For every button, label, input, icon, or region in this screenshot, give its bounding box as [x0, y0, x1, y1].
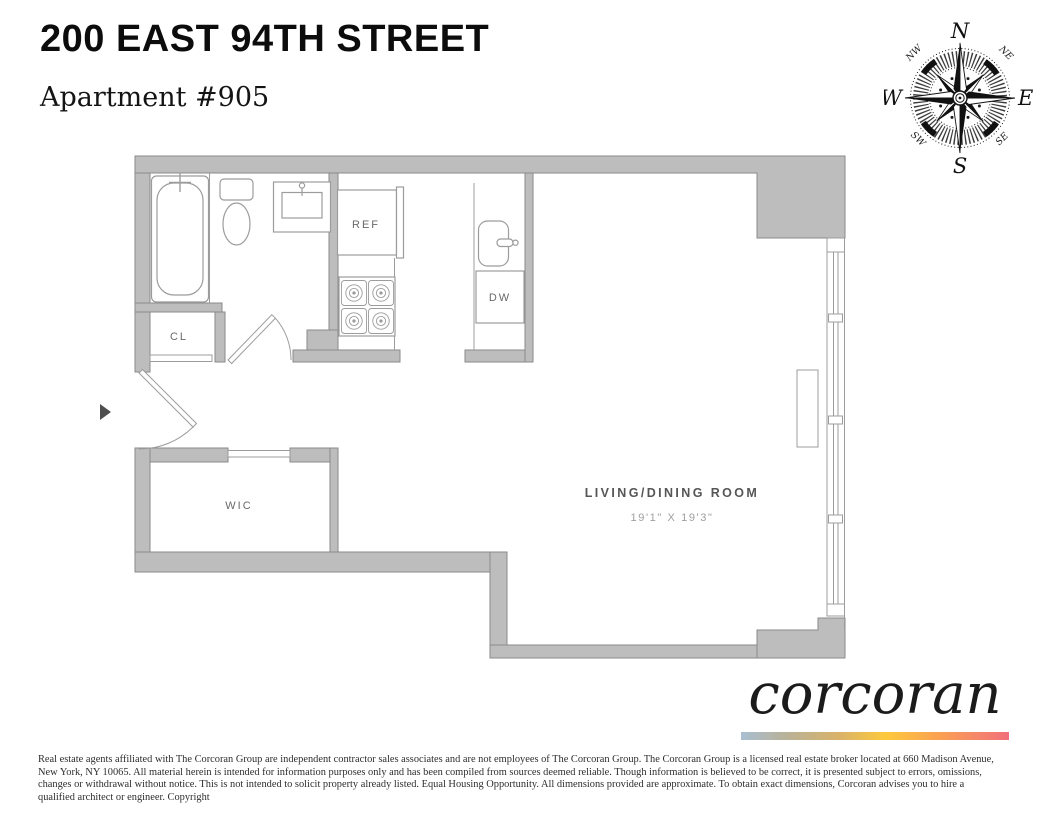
- bathroom-door-swing: [275, 318, 291, 360]
- wic-sliding-door: [228, 451, 290, 458]
- wall-south-living: [490, 645, 762, 658]
- wall-left: [135, 173, 150, 372]
- doors: [100, 315, 291, 457]
- label-living-room: LIVING/DINING ROOM: [585, 486, 759, 500]
- wall-cl-top: [135, 303, 222, 312]
- window-cap-top: [827, 238, 845, 252]
- window-mullion: [829, 416, 843, 424]
- bathroom-door-leaf: [228, 315, 275, 364]
- disclaimer-line: changes or withdrawal without notice. Th…: [38, 779, 1038, 792]
- wall-kitchen-south-right: [465, 350, 533, 362]
- disclaimer-line: New York, NY 10065. All material herein …: [38, 767, 1038, 780]
- kitchen-fixtures: [338, 183, 525, 350]
- toilet-bowl: [223, 203, 250, 245]
- wall-kitchen-living-divider: [525, 173, 533, 362]
- corcoran-logo: corcoran: [741, 660, 1009, 730]
- wall-step-vertical: [490, 552, 507, 658]
- disclaimer-line: Real estate agents affiliated with The C…: [38, 754, 1038, 767]
- room-labels: REF DW CL WIC LIVING/DINING ROOM 19'1" X…: [170, 219, 759, 524]
- kitchen-faucet-icon: [497, 239, 513, 247]
- window-mullion: [829, 515, 843, 523]
- column-enclosure: [797, 370, 818, 447]
- floorplan-page: 200 EAST 94TH STREET Apartment #905: [0, 0, 1056, 816]
- window-cap-bottom: [827, 604, 845, 616]
- label-walk-in-closet: WIC: [225, 500, 252, 512]
- vanity-sink: [282, 193, 322, 219]
- entry-arrow-icon: [100, 404, 111, 420]
- disclaimer-line: qualified architect or engineer. Copyrig…: [38, 792, 1038, 805]
- label-living-room-dimensions: 19'1" X 19'3": [631, 512, 714, 524]
- wall-south-long: [135, 552, 507, 572]
- wall-wic-right: [330, 448, 338, 558]
- brand-gradient-bar: [741, 732, 1009, 740]
- refrigerator-door: [397, 187, 404, 258]
- wall-se-block: [757, 618, 845, 658]
- bathroom-fixtures: [152, 173, 331, 303]
- label-closet: CL: [170, 331, 188, 343]
- label-dishwasher: DW: [489, 292, 511, 304]
- bathtub-basin: [157, 183, 203, 295]
- toilet-tank: [220, 179, 253, 200]
- label-refrigerator: REF: [352, 219, 380, 231]
- wall-cl-right: [215, 312, 225, 362]
- entry-door-swing: [139, 427, 193, 449]
- vanity-faucet-icon: [299, 183, 304, 188]
- wall-kitchen-south-left: [293, 350, 400, 362]
- entry-door-leaf: [139, 370, 197, 428]
- legal-disclaimer: Real estate agents affiliated with The C…: [38, 754, 1038, 804]
- window-mullion: [829, 314, 843, 322]
- window-wall: [797, 238, 845, 630]
- closet-door: [150, 355, 212, 362]
